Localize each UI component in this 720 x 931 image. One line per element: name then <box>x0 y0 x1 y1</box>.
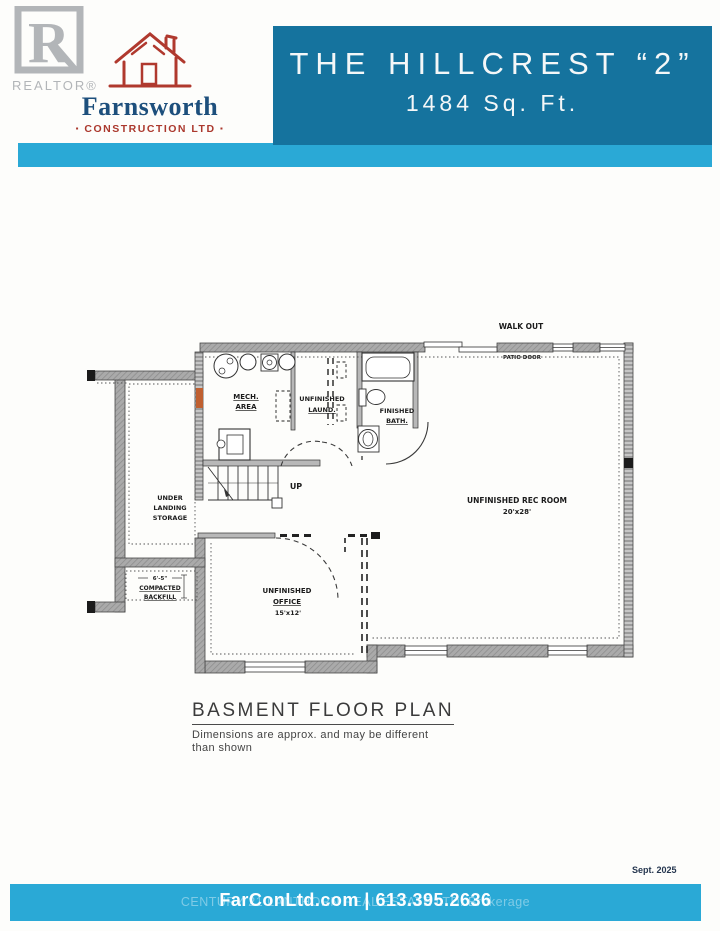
staircase <box>208 466 282 508</box>
patio-door-label: PATIO DOOR <box>503 355 542 361</box>
electrical-panel <box>196 388 203 408</box>
office-label-2: OFFICE <box>273 598 301 606</box>
office-label-3: 15'x12' <box>275 609 301 617</box>
water-tank <box>214 354 238 378</box>
laundry-label-2: LAUND. <box>308 406 336 414</box>
basement-floor-plan-drawing: WALK OUT PATIO DOOR UP MECH. AREA UNFINI… <box>80 300 660 690</box>
right-foundation-wall <box>624 343 633 657</box>
footer-contact: FarConLtd.com | 613.395.2636 <box>10 890 701 911</box>
up-label: UP <box>290 482 302 491</box>
bath-fixtures <box>358 353 414 452</box>
mech-label-1: MECH. <box>233 393 258 401</box>
rec-room-label-2: 20'x28' <box>503 508 531 516</box>
footer-date: Sept. 2025 <box>632 865 677 875</box>
walkout-label: WALK OUT <box>499 322 544 331</box>
plan-title-box: THE HILLCREST “2” 1484 Sq. Ft. <box>273 26 712 145</box>
bath-label-2: BATH. <box>386 417 408 425</box>
square-bullet-icon: ▪ <box>220 124 224 133</box>
toilet-tank <box>359 389 366 406</box>
storage-label-2: LANDING <box>153 504 186 512</box>
caption-block: BASMENT FLOOR PLAN Dimensions are approx… <box>192 700 454 755</box>
bath-label-1: FINISHED <box>380 407 415 415</box>
builder-subtitle-text: CONSTRUCTION LTD <box>84 123 215 135</box>
storage-label-1: UNDER <box>157 494 183 502</box>
house-sketch-icon <box>102 28 198 90</box>
mech-equipment <box>240 354 256 370</box>
plan-sqft: 1484 Sq. Ft. <box>273 90 712 117</box>
caption-note-line2: than shown <box>192 742 454 755</box>
caption-title: BASMENT FLOOR PLAN <box>192 700 454 725</box>
mech-equipment <box>279 354 295 370</box>
door-swings <box>276 422 428 600</box>
header-accent-band <box>18 143 712 167</box>
office-label-1: UNFINISHED <box>263 587 312 595</box>
backfill-dim-label: 6'-5" <box>153 576 168 582</box>
toilet-bowl <box>367 390 385 405</box>
scanned-flyer-page: R REALTOR® Farnsworth ▪ CONSTRUCTION LTD… <box>0 0 720 931</box>
builder-logo: Farnsworth ▪ CONSTRUCTION LTD ▪ <box>60 28 240 135</box>
plan-title: THE HILLCREST “2” <box>273 46 712 82</box>
builder-name: Farnsworth <box>60 92 240 122</box>
square-bullet-icon: ▪ <box>76 124 80 133</box>
builder-subtitle: ▪ CONSTRUCTION LTD ▪ <box>60 123 240 135</box>
office-wall-post <box>371 532 380 539</box>
backfill-label-2: BACKFILL <box>144 594 176 601</box>
windows <box>245 342 625 672</box>
stair-side-wall <box>195 352 203 500</box>
mech-label-2: AREA <box>235 403 257 411</box>
storage-label-3: STORAGE <box>153 514 187 522</box>
rec-room-label-1: UNFINISHED REC ROOM <box>467 496 567 505</box>
caption-note-line1: Dimensions are approx. and may be differ… <box>192 729 454 742</box>
laundry-label-1: UNFINISHED <box>299 395 345 403</box>
backfill-label-1: COMPACTED <box>139 585 181 592</box>
footer-bar: CENTURY 21 LANTHORN REAL ESTATE LTD. Bro… <box>10 884 701 921</box>
